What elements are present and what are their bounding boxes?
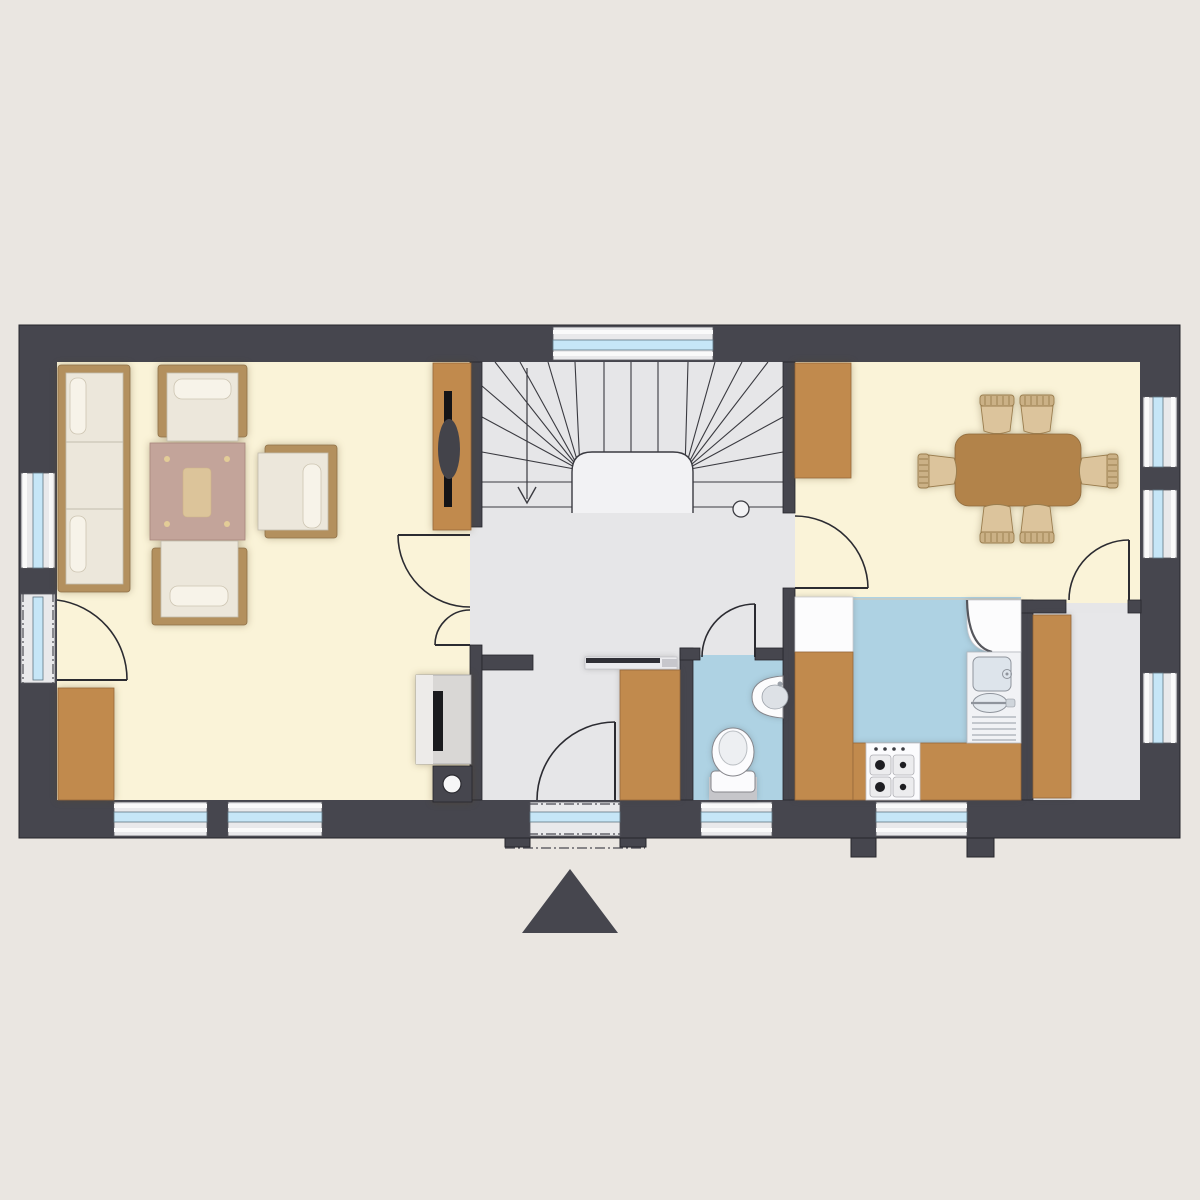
wall-kitchen-storage (1021, 600, 1033, 800)
storage-cabinet (1033, 615, 1071, 798)
dining-chair (980, 395, 1014, 434)
kitchen-corner-unit (967, 600, 1021, 652)
basin-tap-icon (778, 682, 783, 687)
stair-void (572, 452, 693, 513)
coffee-table (150, 443, 245, 540)
dining-chair (980, 505, 1014, 544)
wall-wc-top-right (755, 648, 783, 660)
living-sideboard (58, 688, 114, 800)
kitchen-tall-unit (795, 597, 853, 652)
wall-dining-storage-right (1128, 600, 1141, 613)
wall-wc-top-left (680, 648, 700, 660)
wall-stub-hall (482, 655, 533, 670)
armchair-bottom (152, 541, 247, 625)
window-stairs-top (553, 327, 713, 360)
window-living-left (21, 473, 55, 568)
floor-plan-page (0, 0, 1200, 1200)
dining-chair (1020, 505, 1054, 544)
sofa-pillow (70, 378, 86, 434)
hall-wardrobe (620, 670, 680, 800)
wall-living-stairs (470, 362, 482, 527)
kitchen-counter-left (795, 652, 853, 800)
window-storage-right (1143, 673, 1177, 743)
toilet (709, 728, 757, 800)
window-kitchen (876, 802, 967, 836)
wall-stairs-dining (783, 362, 795, 513)
window-dining-right-1 (1143, 397, 1177, 467)
kitchen-stove (866, 743, 920, 800)
dining-chair (1080, 454, 1119, 488)
tv-lowboard (433, 363, 471, 530)
three-seat-sofa (58, 365, 130, 592)
armchair-right (258, 445, 337, 538)
coat-rack (585, 657, 677, 669)
armchair-top (158, 365, 247, 441)
dining-sideboard (795, 363, 851, 478)
dining-chair (1020, 395, 1054, 434)
dining-table (955, 434, 1081, 506)
wall-wc-left (680, 648, 693, 800)
newel-post (733, 501, 749, 517)
tv-screen (438, 419, 460, 479)
window-wc (701, 802, 772, 836)
chimney (433, 766, 472, 802)
window-dining-right-2 (1143, 490, 1177, 558)
window-living-bottom-2 (228, 802, 322, 836)
floor-plan-drawing (0, 0, 1200, 1200)
window-living-bottom-1 (114, 802, 207, 836)
wood-stove (416, 675, 471, 764)
flue-icon (443, 775, 461, 793)
storage-furniture (1033, 615, 1071, 798)
sofa-pillow (70, 516, 86, 572)
wall-dining-storage-left (1021, 600, 1066, 613)
dining-chair (918, 454, 957, 488)
kitchen-sink (967, 652, 1021, 743)
